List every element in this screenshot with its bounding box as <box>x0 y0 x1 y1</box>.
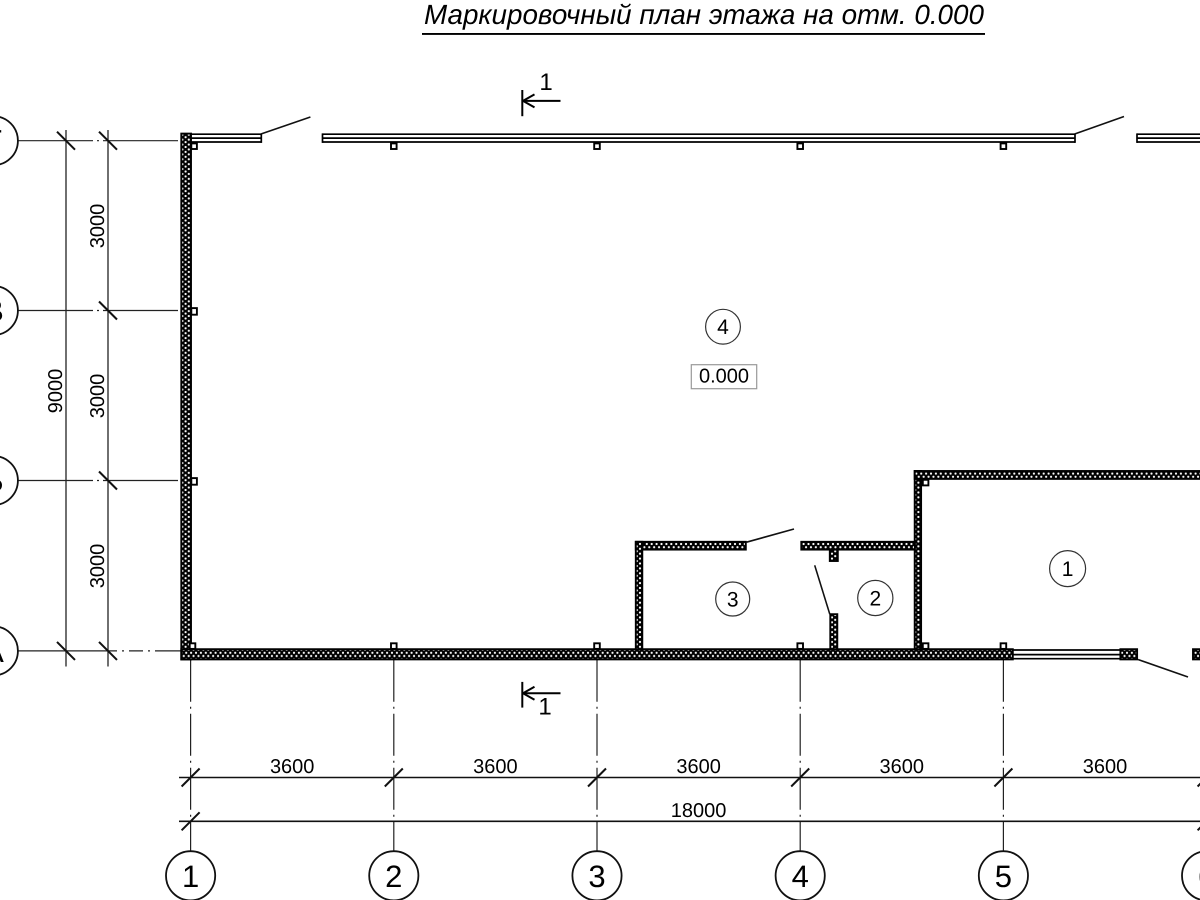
svg-text:9000: 9000 <box>45 369 67 414</box>
svg-text:1: 1 <box>538 694 551 721</box>
svg-text:1: 1 <box>182 859 199 894</box>
svg-text:0.000: 0.000 <box>699 366 749 388</box>
svg-text:Г: Г <box>0 124 2 159</box>
svg-text:3: 3 <box>588 859 605 894</box>
svg-text:5: 5 <box>995 859 1012 894</box>
svg-text:3000: 3000 <box>87 374 109 419</box>
svg-text:2: 2 <box>385 859 402 894</box>
svg-text:А: А <box>0 634 4 669</box>
svg-text:1: 1 <box>539 69 552 96</box>
svg-text:3600: 3600 <box>1083 756 1128 778</box>
svg-text:18000: 18000 <box>671 800 727 822</box>
svg-text:3600: 3600 <box>880 756 925 778</box>
svg-text:1: 1 <box>1062 558 1074 581</box>
svg-text:2: 2 <box>869 588 881 611</box>
svg-text:В: В <box>0 294 4 329</box>
svg-text:3600: 3600 <box>676 756 721 778</box>
svg-text:3000: 3000 <box>87 544 109 589</box>
svg-text:3600: 3600 <box>473 756 518 778</box>
svg-text:Б: Б <box>0 464 4 499</box>
svg-text:Маркировочный план этажа на от: Маркировочный план этажа на отм. 0.000 <box>424 0 984 30</box>
svg-text:4: 4 <box>792 859 809 894</box>
svg-text:4: 4 <box>717 316 729 339</box>
svg-text:3: 3 <box>727 589 739 612</box>
svg-text:3600: 3600 <box>270 756 315 778</box>
svg-text:3000: 3000 <box>87 204 109 249</box>
